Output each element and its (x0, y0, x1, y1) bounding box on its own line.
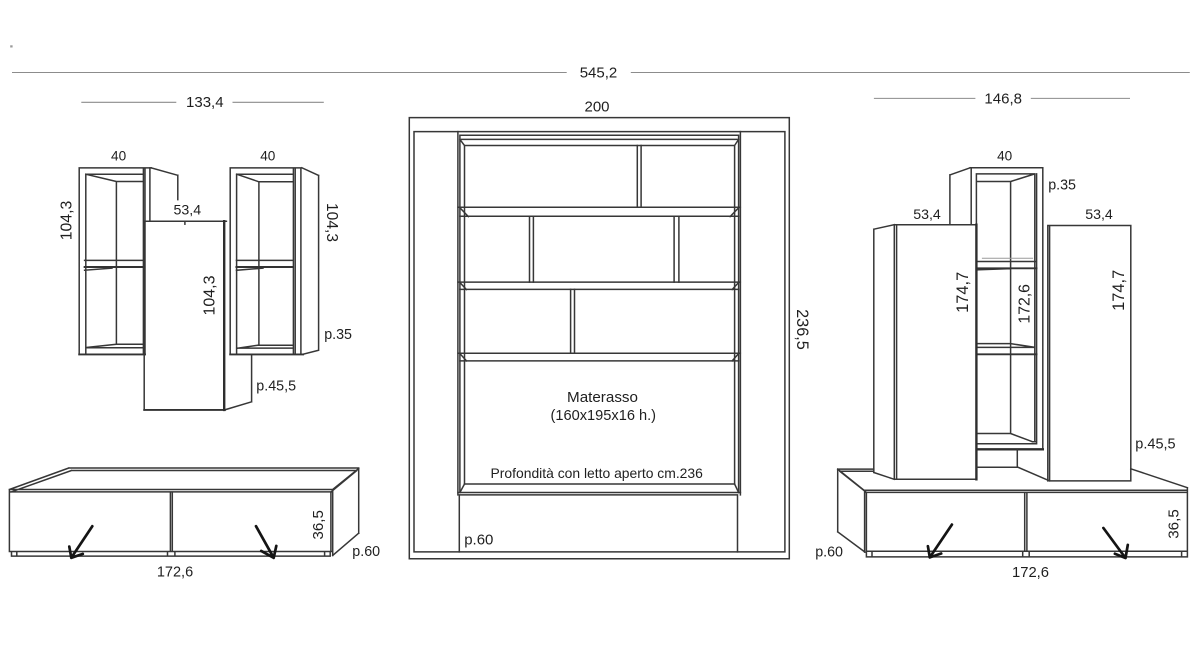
svg-text:172,6: 172,6 (1012, 565, 1049, 581)
svg-text:104,3: 104,3 (59, 201, 76, 241)
svg-text:53,4: 53,4 (913, 207, 941, 223)
svg-text:p.45,5: p.45,5 (1135, 436, 1175, 452)
svg-text:172,6: 172,6 (1016, 284, 1033, 324)
svg-text:p.35: p.35 (324, 327, 352, 343)
svg-text:236,5: 236,5 (793, 309, 811, 350)
svg-text:(160x195x16 h.): (160x195x16 h.) (551, 408, 656, 424)
svg-text:Profondità con letto aperto cm: Profondità con letto aperto cm.236 (491, 465, 704, 481)
svg-text:104,3: 104,3 (323, 203, 340, 242)
svg-text:174,7: 174,7 (1110, 270, 1128, 311)
svg-text:40: 40 (111, 148, 127, 163)
svg-text:p.35: p.35 (1048, 177, 1076, 193)
svg-text:Materasso: Materasso (567, 389, 638, 406)
svg-text:146,8: 146,8 (984, 90, 1022, 107)
svg-text:53,4: 53,4 (173, 203, 201, 219)
svg-text:p.60: p.60 (815, 544, 843, 560)
svg-text:172,6: 172,6 (157, 564, 193, 580)
svg-text:36,5: 36,5 (310, 510, 327, 540)
svg-text:133,4: 133,4 (186, 94, 224, 111)
svg-text:p.60: p.60 (464, 531, 493, 548)
svg-text:104,3: 104,3 (202, 275, 219, 315)
svg-text:53,4: 53,4 (1085, 207, 1113, 223)
svg-text:40: 40 (997, 149, 1013, 164)
svg-text:40: 40 (260, 148, 276, 163)
svg-text:545,2: 545,2 (580, 64, 618, 81)
svg-text:p.60: p.60 (352, 544, 380, 560)
svg-text:200: 200 (584, 99, 609, 116)
svg-text:174,7: 174,7 (954, 272, 972, 313)
svg-text:36,5: 36,5 (1166, 509, 1183, 539)
svg-text:p.45,5: p.45,5 (256, 378, 296, 394)
